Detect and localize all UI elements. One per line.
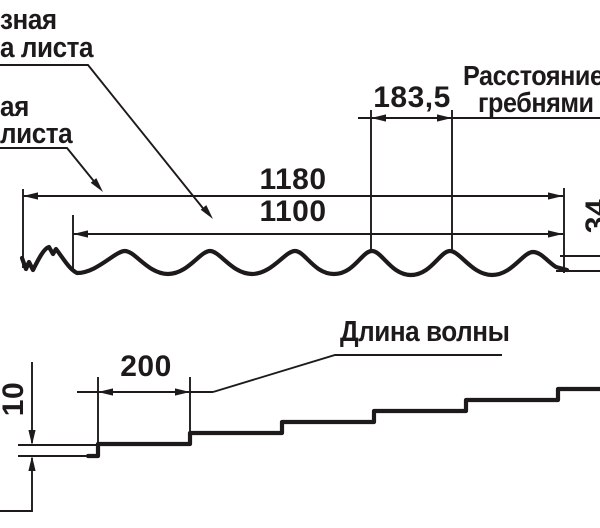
arrowhead-right [175, 388, 190, 395]
label-useful-width-line1: зная [0, 6, 57, 35]
metal-sheet-dimension-diagram: зная а листа ая листа 183,5 Расстояние г… [0, 0, 600, 528]
label-total-width-line2: листа [0, 120, 72, 149]
arrowhead-left [23, 192, 38, 199]
leader-total-width [0, 148, 103, 192]
leader-line [0, 148, 97, 185]
arrowhead-left [73, 230, 88, 237]
dim-label-1180: 1180 [233, 168, 353, 192]
arrowhead-right [437, 114, 452, 121]
dim-label-10-rotated: 10 [2, 377, 26, 421]
sheet-wave-profile [22, 247, 567, 275]
dim-label-183-5: 183,5 [351, 86, 473, 110]
leader-wave-length [213, 355, 502, 392]
arrowhead-down [28, 430, 35, 445]
arrowhead-right [548, 192, 563, 199]
sheet-step-profile [88, 389, 600, 456]
label-wave-length: Длина волны [340, 318, 509, 347]
arrowhead-right [548, 230, 563, 237]
dim-label-1100: 1100 [233, 200, 353, 224]
dimension-line-lower [0, 458, 32, 511]
label-useful-width-line2: а листа [0, 34, 93, 63]
arrowhead-left [371, 114, 386, 121]
arrowhead-left [98, 388, 113, 395]
label-crest-distance-line2: гребнями в [478, 89, 600, 117]
dim-label-200: 200 [96, 355, 196, 379]
dim-label-34-rotated: 34 [585, 192, 600, 240]
label-crest-distance-line1: Расстояние [463, 62, 600, 90]
